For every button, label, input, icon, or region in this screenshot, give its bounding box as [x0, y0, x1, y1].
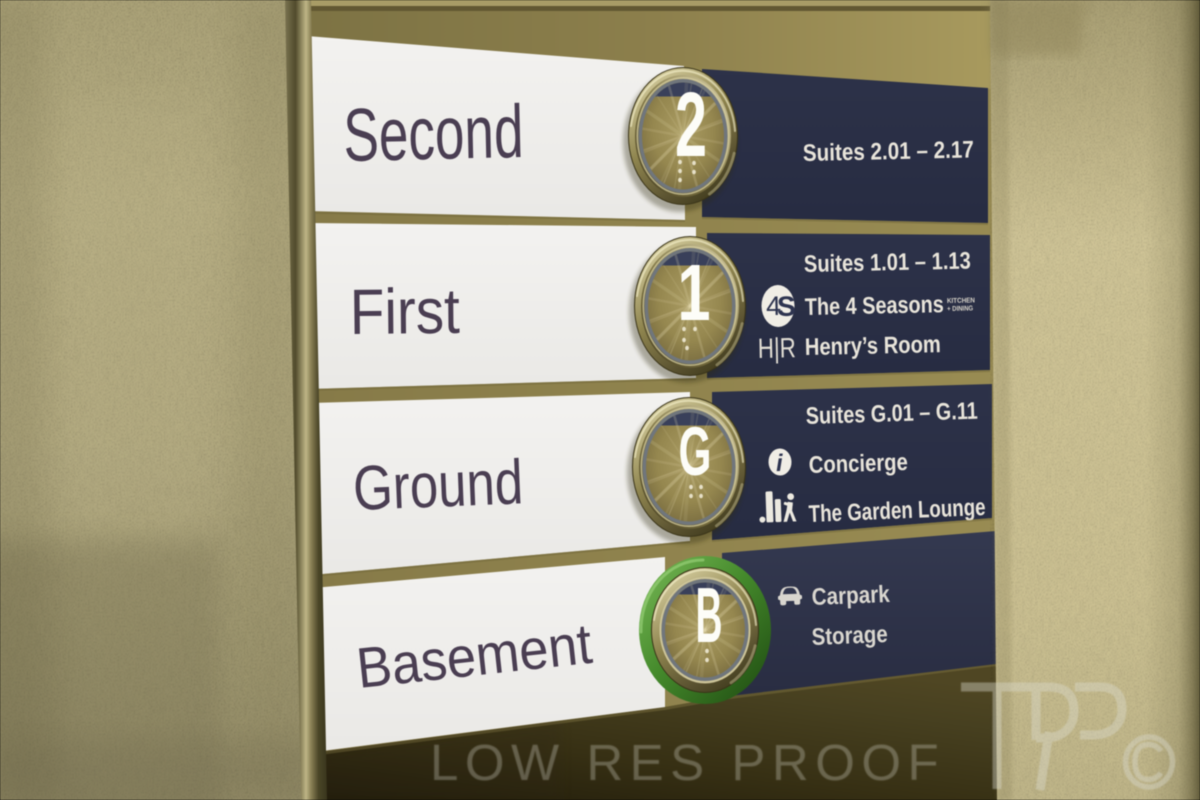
svg-text:LOW RES PROOF: LOW RES PROOF [430, 734, 945, 791]
svg-text:S: S [777, 291, 796, 322]
svg-text:KITCHEN: KITCHEN [947, 297, 975, 305]
svg-text:Suites G.01 – G.11: Suites G.01 – G.11 [805, 398, 978, 430]
svg-text:1: 1 [678, 248, 711, 337]
svg-text:Concierge: Concierge [808, 449, 908, 479]
svg-text:Suites 2.01 – 2.17: Suites 2.01 – 2.17 [803, 136, 975, 167]
svg-text:Storage: Storage [811, 621, 888, 651]
svg-text:Suites 1.01 – 1.13: Suites 1.01 – 1.13 [804, 248, 972, 278]
svg-text:+ DINING: + DINING [947, 305, 974, 313]
svg-text:The 4 Seasons: The 4 Seasons [805, 291, 945, 321]
svg-text:Ground: Ground [352, 447, 525, 524]
svg-text:First: First [349, 275, 460, 348]
svg-text:Carpark: Carpark [811, 581, 891, 611]
svg-text:G: G [679, 413, 712, 490]
svg-text:Henry’s Room: Henry’s Room [805, 331, 942, 361]
svg-text:Second: Second [342, 89, 524, 177]
svg-text:B: B [696, 571, 723, 659]
svg-text:H|R: H|R [757, 332, 796, 364]
